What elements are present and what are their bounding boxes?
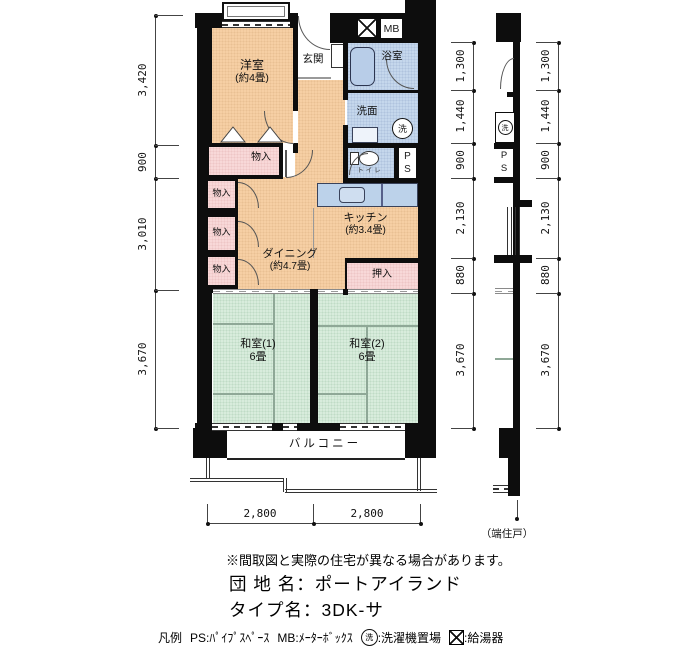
kitchen-counter <box>317 183 418 207</box>
dim-line-right-outer <box>558 42 559 428</box>
balcony-pier-right <box>405 428 436 458</box>
counter-divider <box>381 184 383 206</box>
window-band <box>283 423 297 431</box>
closet-swing-triangles <box>212 126 294 144</box>
fusuma-track <box>318 289 343 294</box>
room-label-kitchen: キッチン(約3.4畳) <box>313 212 418 237</box>
wall <box>297 423 340 431</box>
wall <box>345 263 347 289</box>
room-label-toilet: トイレ <box>348 167 392 175</box>
dim-right-inner-5: 3,670 <box>452 320 468 400</box>
section-wall <box>513 200 532 207</box>
entrance-step-line <box>297 77 331 79</box>
dim-left-1: 900 <box>134 122 150 202</box>
dim-right-outer-5: 3,670 <box>537 320 553 400</box>
section-wall <box>494 177 520 183</box>
dim-stub <box>155 15 183 16</box>
mb-box: MB <box>379 17 404 40</box>
section-wall <box>508 458 520 496</box>
legend-ps: PS:ﾊﾟｲﾌﾟｽﾍﾟｰｽ <box>190 629 269 646</box>
dim-line-left <box>155 15 156 428</box>
water-heater-icon <box>449 630 464 645</box>
tatami-line <box>213 323 273 325</box>
wall <box>405 0 436 14</box>
disclaimer-note: ※間取図と実際の住宅が異なる場合があります。 <box>226 550 511 569</box>
wall <box>290 13 298 28</box>
section-wall <box>499 428 520 458</box>
end-unit-dot <box>515 517 519 521</box>
wall <box>310 289 318 429</box>
balcony-railing <box>190 478 284 482</box>
entrance-door-arc <box>298 16 330 50</box>
dim-stub <box>451 428 473 429</box>
legend-mb: MB:ﾒｰﾀｰﾎﾞｯｸｽ <box>277 629 352 646</box>
dim-bottom-0: 2,800 <box>230 505 290 521</box>
dim-tick <box>312 522 316 526</box>
legend-row: 凡例 PS:ﾊﾟｲﾌﾟｽﾍﾟｰｽ MB:ﾒｰﾀｰﾎﾞｯｸｽ 洗:洗濯機置場 :給… <box>158 629 503 646</box>
mb-label: MB <box>384 23 400 35</box>
end-unit-label: （端住戸） <box>472 528 542 541</box>
dim-stub <box>313 504 314 523</box>
room-label-japanese2: 和室(2)6畳 <box>322 338 412 364</box>
railing-connector <box>206 458 210 479</box>
end-unit-leader <box>517 500 518 518</box>
section-wall <box>496 13 521 42</box>
section-wall <box>494 255 532 263</box>
washer-mark: 洗 <box>398 122 407 135</box>
ps-label-s: S <box>404 163 411 176</box>
type-name: タイプ名：3DK-サ <box>229 597 384 622</box>
window-band <box>212 423 272 431</box>
ps-label-p: P <box>404 150 411 163</box>
section-door-arc <box>500 58 514 89</box>
window-band <box>222 21 290 28</box>
dim-left-0: 3,420 <box>134 40 150 120</box>
estate-name: 団 地 名：ポートアイランド <box>229 571 462 596</box>
legend-washer: 洗:洗濯機置場 <box>361 629 441 646</box>
bathtub <box>350 47 375 86</box>
bay-window-inner <box>227 6 285 17</box>
section-fusuma <box>495 288 513 294</box>
section-wall <box>494 143 520 149</box>
room-label-bath: 浴室 <box>375 50 409 63</box>
closet-label: 物入 <box>244 152 278 164</box>
dim-line-right-inner <box>473 42 474 428</box>
room-label-japanese1: 和室(1)6畳 <box>213 338 303 364</box>
dim-stub <box>536 428 558 429</box>
water-heater-icon <box>356 17 378 39</box>
balcony-label: バルコニー <box>260 438 390 452</box>
room-label-entrance: 玄関 <box>296 53 330 66</box>
dim-stub <box>155 290 179 291</box>
room-label-western: 洋室(約4畳) <box>210 58 294 85</box>
section-tatami-line <box>495 358 513 360</box>
dim-right-outer-4: 880 <box>537 235 553 315</box>
floorplan-canvas: 洗 <box>0 0 700 650</box>
wall <box>345 258 418 263</box>
tatami-line <box>318 393 367 395</box>
window-band <box>340 423 405 431</box>
tatami-line <box>213 393 273 395</box>
section-wall <box>507 92 513 97</box>
washer-circle-icon: 洗 <box>361 629 378 646</box>
balcony-pier-left <box>193 428 227 458</box>
closet-label: 物入 <box>208 227 235 238</box>
section-ps-label: PS <box>495 150 513 176</box>
dim-stub <box>155 178 179 179</box>
dim-left-2: 3,010 <box>134 194 150 274</box>
legend-heater: :給湯器 <box>449 629 503 646</box>
dim-stub <box>207 504 208 523</box>
section-window-hatch <box>507 207 521 257</box>
tatami-line <box>318 325 418 327</box>
wall <box>272 423 283 431</box>
room-label-washroom: 洗面 <box>350 105 384 118</box>
section-window-band <box>493 485 508 493</box>
balcony-railing <box>285 489 437 493</box>
washer-place-icon: 洗 <box>392 118 413 139</box>
section-washer-box: 洗 <box>495 112 515 143</box>
closet-label: 物入 <box>208 264 235 275</box>
wall <box>347 90 418 93</box>
ps-box: P S <box>397 146 418 180</box>
fusuma-track <box>348 289 418 294</box>
washer-place-icon: 洗 <box>498 120 513 135</box>
railing-connector <box>417 458 421 491</box>
room-label-dining: ダイニング(約4.7畳) <box>238 248 342 273</box>
dim-tick <box>419 522 423 526</box>
vanity-unit <box>352 127 378 143</box>
kitchen-sink <box>339 187 365 203</box>
dim-stub <box>155 428 179 429</box>
dim-stub <box>155 145 179 146</box>
dim-tick <box>206 522 210 526</box>
dim-left-3: 3,670 <box>134 319 150 399</box>
dim-right-inner-4: 880 <box>452 235 468 315</box>
dim-bottom-1: 2,800 <box>337 505 397 521</box>
legend-title: 凡例 <box>158 629 182 646</box>
room-label-oshiire: 押入 <box>360 269 404 281</box>
dim-stub <box>420 504 421 523</box>
closet-label: 物入 <box>208 188 235 199</box>
wall <box>418 13 436 423</box>
fusuma-track <box>213 289 310 294</box>
